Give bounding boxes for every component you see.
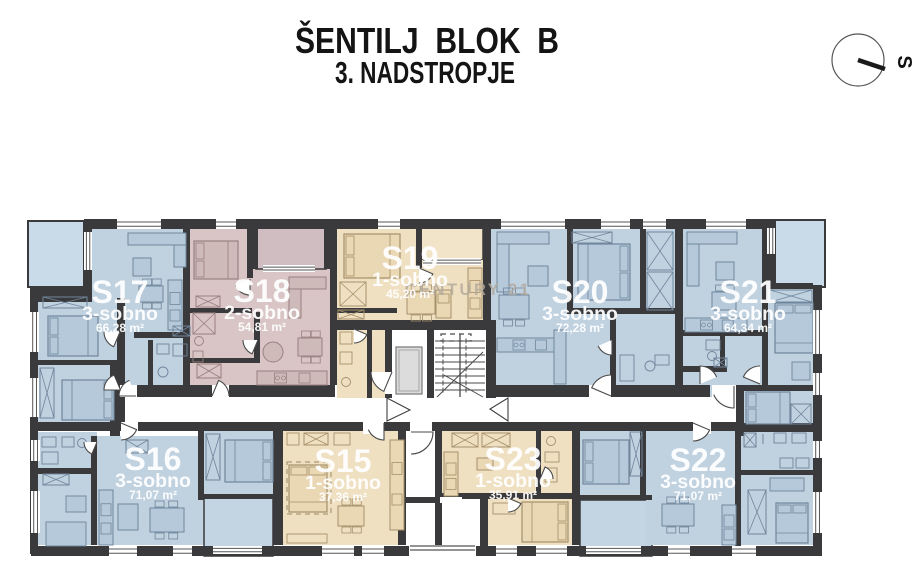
svg-text:45,20 m²: 45,20 m² [386,287,434,301]
svg-text:3. NADSTROPJE: 3. NADSTROPJE [335,55,515,90]
svg-text:S: S [893,55,915,68]
svg-text:54,81 m²: 54,81 m² [238,320,286,334]
svg-text:71,07 m²: 71,07 m² [129,488,177,502]
svg-text:37,36 m²: 37,36 m² [319,490,367,504]
svg-text:66,28 m²: 66,28 m² [96,321,144,335]
svg-text:72,28 m²: 72,28 m² [556,321,604,335]
svg-text:71,07 m²: 71,07 m² [674,489,722,503]
svg-text:35,91 m²: 35,91 m² [489,488,537,502]
svg-text:64,34 m²: 64,34 m² [724,321,772,335]
